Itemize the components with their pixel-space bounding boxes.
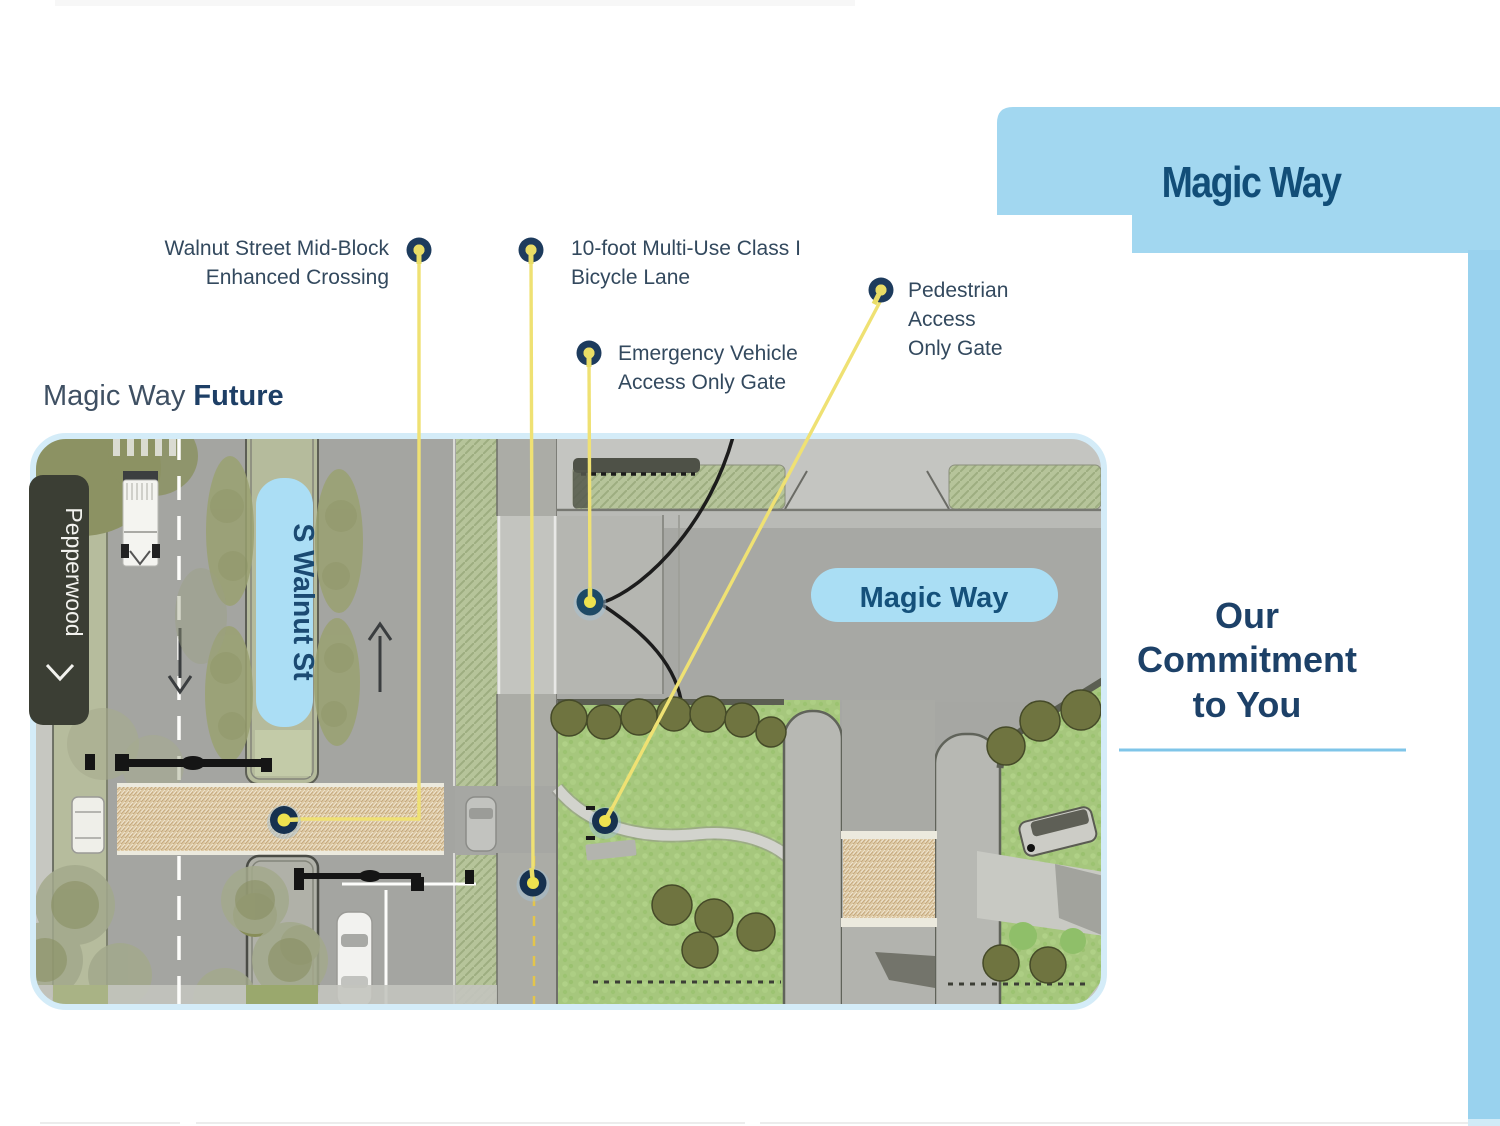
svg-text:Emergency Vehicle: Emergency Vehicle [618, 342, 798, 365]
svg-text:Only Gate: Only Gate [908, 337, 1003, 360]
svg-text:S Walnut St: S Walnut St [287, 523, 319, 681]
svg-text:Bicycle Lane: Bicycle Lane [571, 266, 690, 289]
svg-text:Access Only Gate: Access Only Gate [618, 371, 786, 394]
svg-text:Commitment: Commitment [1137, 639, 1357, 680]
svg-text:to You: to You [1193, 684, 1302, 725]
svg-text:Our: Our [1215, 595, 1279, 636]
svg-text:Pedestrian: Pedestrian [908, 279, 1008, 302]
svg-text:Pepperwood: Pepperwood [61, 507, 87, 636]
svg-text:Walnut Street Mid-Block: Walnut Street Mid-Block [165, 237, 390, 260]
svg-text:Enhanced Crossing: Enhanced Crossing [206, 266, 389, 289]
svg-text:Magic Way: Magic Way [860, 582, 1009, 614]
svg-text:Access: Access [908, 308, 976, 331]
svg-text:10-foot Multi-Use Class I: 10-foot Multi-Use Class I [571, 237, 801, 260]
svg-text:Magic Way: Magic Way [1162, 157, 1343, 206]
svg-text:Magic Way Future: Magic Way Future [43, 380, 284, 412]
